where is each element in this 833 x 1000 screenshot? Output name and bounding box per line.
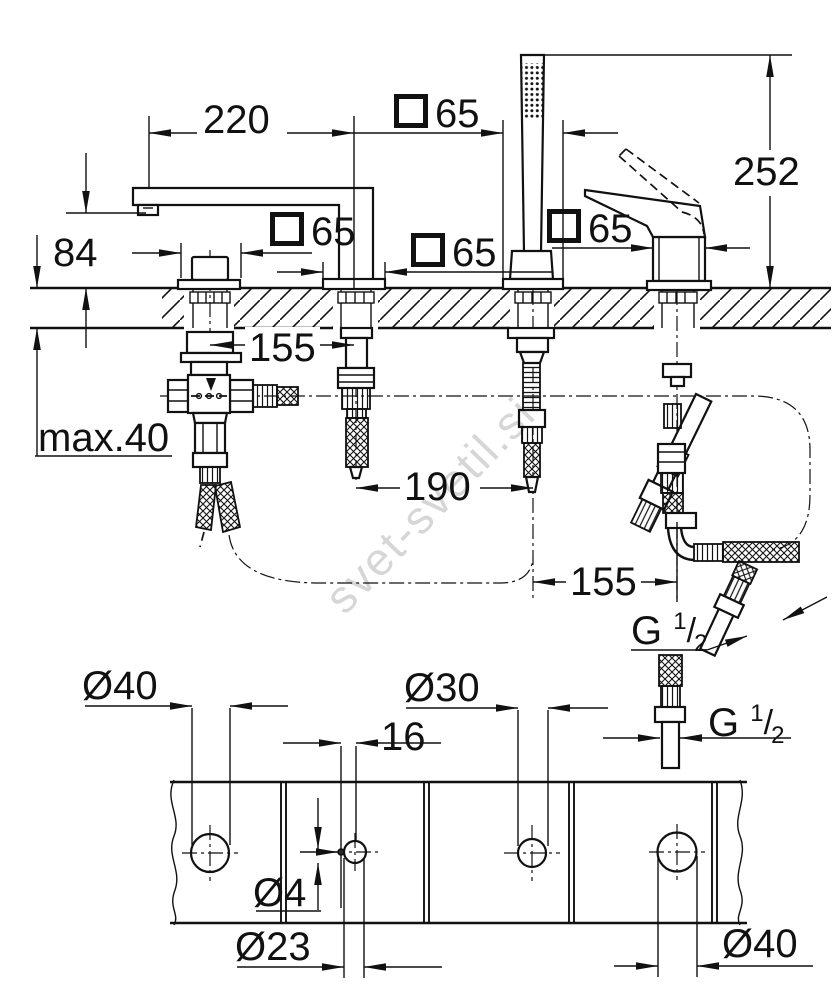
dim-spout-reach: 220 bbox=[203, 99, 270, 141]
dim-hole-spacing-1-2: 155 bbox=[245, 327, 320, 369]
dim-escutcheon-hole1: 65 bbox=[270, 211, 356, 253]
hand-shower bbox=[503, 55, 563, 289]
spray-face-icon bbox=[522, 63, 544, 118]
square-symbol-icon bbox=[411, 233, 445, 267]
dim-overall-height: 252 bbox=[733, 151, 800, 193]
dim-escutcheon-hole4: 65 bbox=[547, 208, 633, 250]
side-view bbox=[30, 55, 831, 768]
dim-hole3-diameter: Ø30 bbox=[404, 667, 480, 709]
mounting-deck bbox=[30, 288, 831, 340]
dim-pin-diameter: Ø4 bbox=[253, 872, 306, 914]
plan-view bbox=[85, 706, 813, 978]
dim-deck-thickness: max.40 bbox=[38, 417, 169, 459]
square-symbol-icon bbox=[270, 212, 304, 246]
dim-spout-height: 84 bbox=[53, 232, 98, 274]
spout-supply-connection bbox=[338, 328, 374, 478]
thread-size-connector: G 1/2 bbox=[708, 701, 784, 748]
shower-hose-end bbox=[655, 655, 685, 768]
dim-escutcheon-top: 65 bbox=[394, 93, 480, 135]
dim-escutcheon-hole2: 65 bbox=[411, 232, 497, 274]
dim-pin-offset: 16 bbox=[381, 716, 426, 758]
dim-hole1-diameter: Ø40 bbox=[82, 665, 158, 707]
dim-hole2-diameter: Ø23 bbox=[235, 926, 311, 968]
diverter-handle bbox=[178, 257, 240, 289]
square-symbol-icon bbox=[394, 94, 428, 128]
technical-drawing-page: 220 252 84 max.40 65 65 65 65 155 190 15… bbox=[0, 0, 833, 1000]
dim-hole-spacing-3-4: 155 bbox=[566, 561, 641, 603]
thread-size-hose: G 1/2 bbox=[631, 609, 707, 656]
supply-connections bbox=[168, 328, 799, 768]
square-symbol-icon bbox=[547, 209, 581, 243]
dim-hole4-diameter: Ø40 bbox=[722, 923, 798, 965]
